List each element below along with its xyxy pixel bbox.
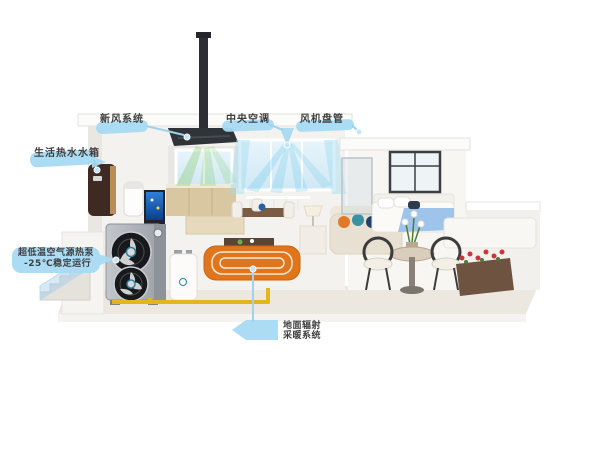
pillow-teal: [352, 214, 364, 226]
brand-badge: [154, 229, 162, 237]
buffer-tank-body: [170, 254, 197, 300]
callout-banner-floor-heating: [232, 320, 278, 340]
tank-trim: [110, 166, 116, 214]
dining-chair: [232, 202, 242, 218]
flower-planter: [456, 258, 514, 296]
fan-icon: [111, 232, 151, 272]
callout-label-fan-coil: 风机盘管: [300, 114, 344, 125]
heat-pump-house-diagram: 新风系统 中央空调 风机盘管 生活热水水箱 超低温空气源热泵 -25℃稳定运行 …: [0, 0, 600, 450]
callout-label-fresh-air: 新风系统: [100, 114, 144, 125]
leader-dot: [250, 266, 256, 272]
glass-partition: [342, 158, 372, 214]
leader-dot: [113, 257, 119, 263]
callout-label-central-ac: 中央空调: [226, 114, 270, 125]
tank-display: [93, 176, 102, 181]
callout-label-heat-pump-2: -25℃稳定运行: [24, 260, 91, 270]
roof-right: [340, 138, 470, 150]
kitchen-cabinets: [166, 188, 236, 216]
leader-dot: [94, 167, 100, 173]
outdoor-heat-pump-unit: [106, 224, 166, 305]
callout-label-hot-water: 生活热水水箱: [34, 148, 100, 159]
fan-icon: [114, 267, 148, 301]
tank-badge: [180, 279, 187, 286]
pillow-orange: [338, 216, 350, 228]
kitchen-island: [186, 216, 244, 234]
leader-dot: [184, 134, 190, 140]
callout-label-floor-heating-2: 采暖系统: [283, 332, 321, 342]
side-table: [300, 226, 326, 254]
leader-dot: [356, 129, 362, 135]
pillow: [394, 197, 410, 207]
house-cutaway-illustration: [0, 0, 600, 450]
accent-pillow: [408, 201, 420, 209]
lamp-shade: [304, 206, 322, 216]
pillow: [378, 198, 394, 208]
dining-chair: [284, 202, 294, 218]
table-decor: [259, 204, 266, 211]
leader-dot: [284, 142, 290, 148]
exhaust-duct: [199, 38, 208, 130]
duct-cap: [196, 32, 211, 38]
buffer-tank: [170, 250, 197, 300]
callout-label-heat-pump-1: 超低温空气源热泵: [18, 249, 94, 259]
